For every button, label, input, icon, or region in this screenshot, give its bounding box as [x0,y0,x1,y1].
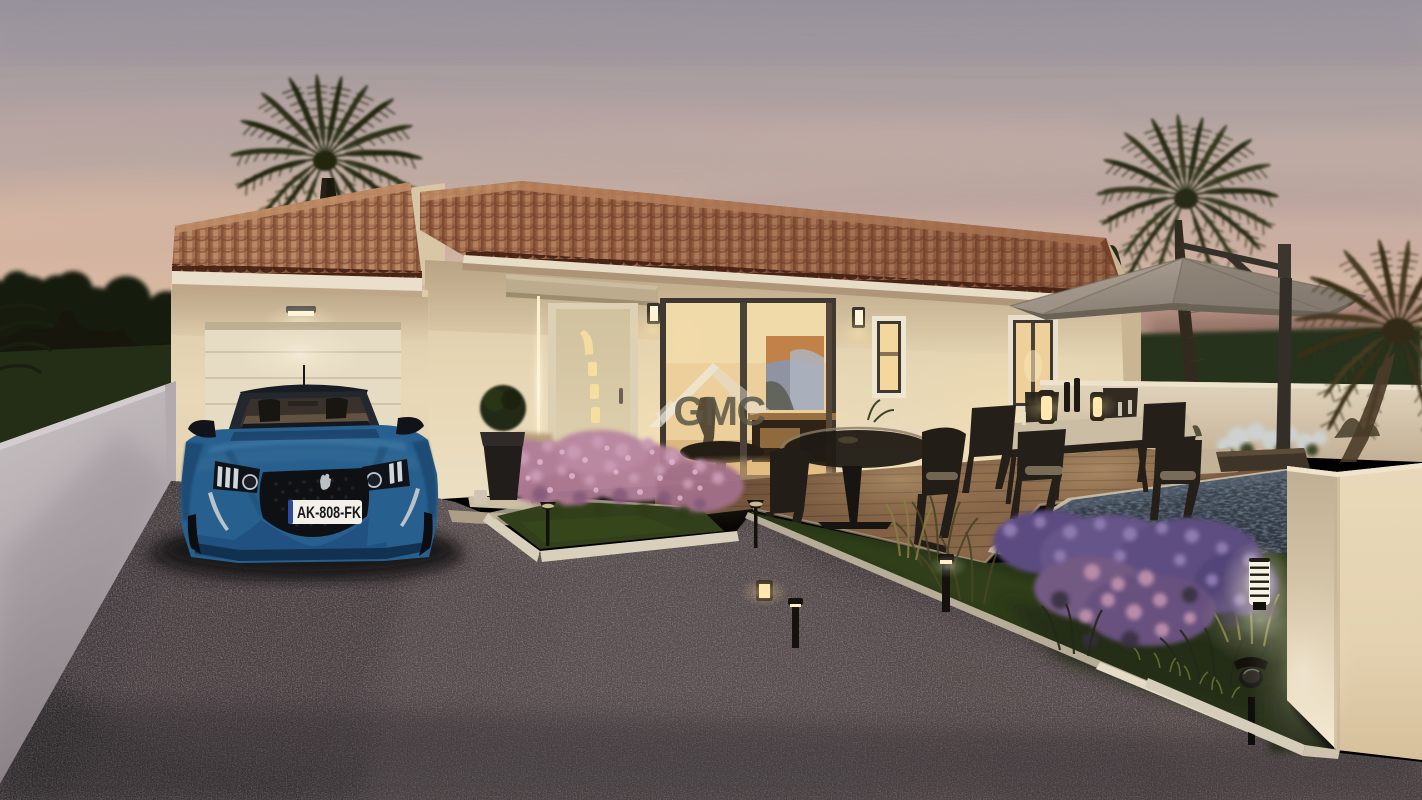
svg-text:GMC: GMC [673,388,765,434]
svg-text:AK-808-FK: AK-808-FK [297,503,362,522]
